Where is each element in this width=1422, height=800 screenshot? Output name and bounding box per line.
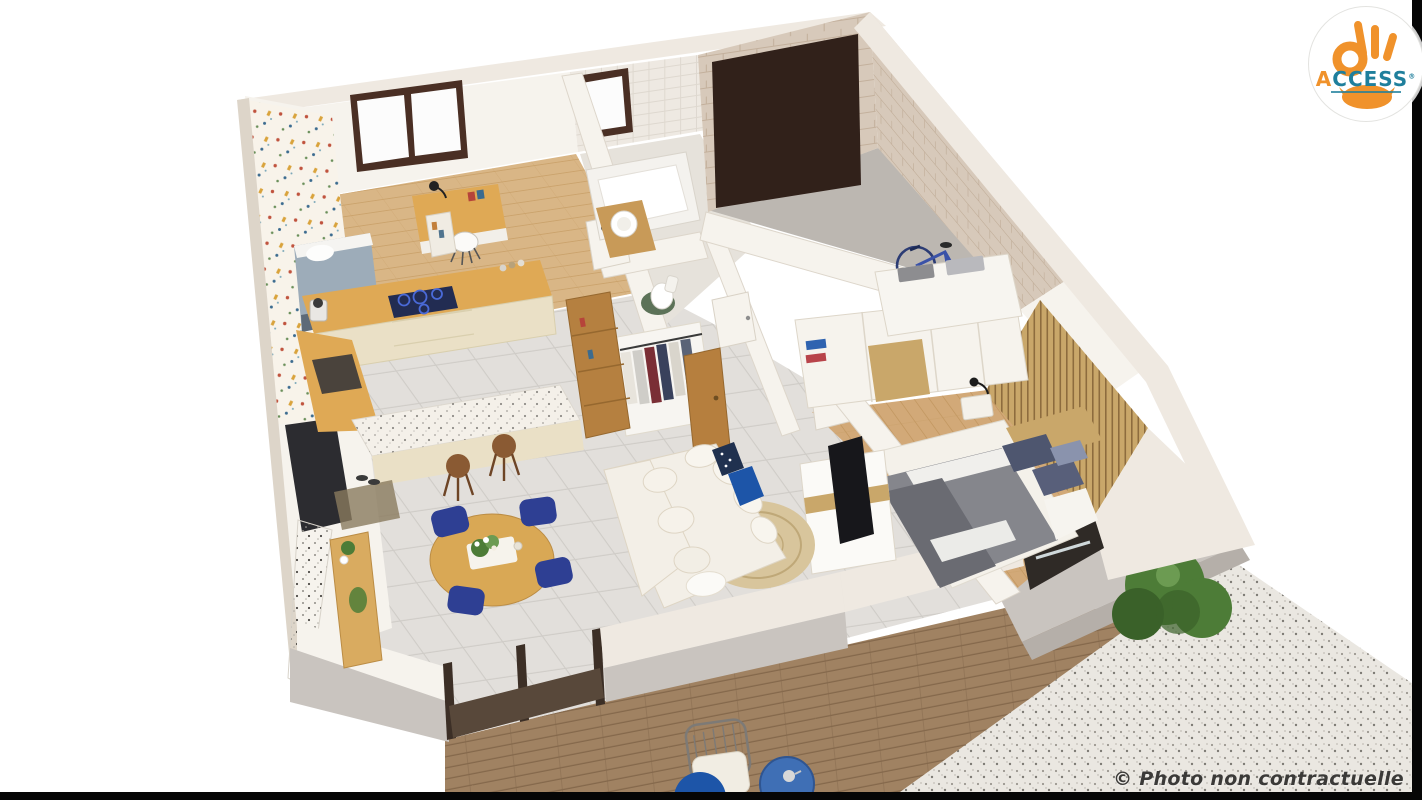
copyright-watermark: © Photo non contractuelle — [1113, 768, 1404, 790]
office-window — [350, 80, 468, 172]
coffee-machine — [310, 298, 327, 321]
access-logo: ACCESS® — [1308, 6, 1422, 122]
floorplan-scene — [0, 0, 1422, 800]
floorplan-render: ACCESS® © Photo non contractuelle — [0, 0, 1422, 800]
door-leaf-hall — [712, 292, 756, 348]
garage-door — [712, 34, 861, 208]
dining-chair-4 — [446, 585, 485, 617]
access-logo-hand-icon — [1309, 7, 1422, 121]
dining-chair-2 — [518, 496, 557, 528]
access-logo-underline — [1331, 91, 1401, 93]
access-logo-text: ACCESS® — [1309, 67, 1422, 91]
letterbox-bottom — [0, 792, 1422, 800]
